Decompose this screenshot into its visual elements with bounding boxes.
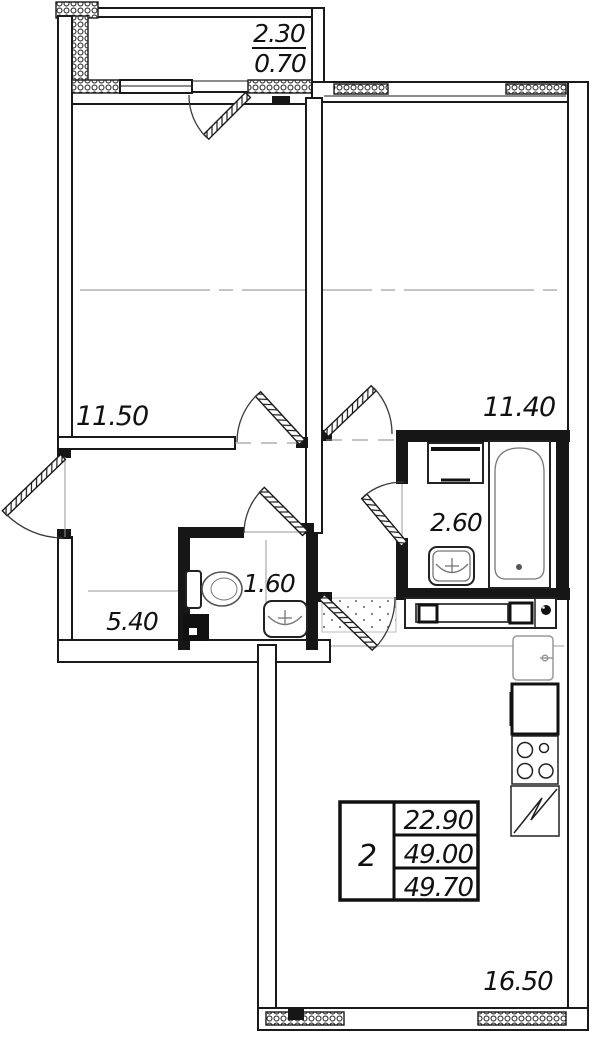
wc-right-wall — [306, 533, 318, 650]
floor-plan: 2 22.90 49.00 49.70 2.30 0.70 11.50 11.4… — [0, 0, 600, 1040]
vent-shaft — [183, 614, 209, 641]
living-area-value: 22.90 — [404, 806, 474, 836]
balcony-left-wall — [72, 16, 88, 82]
bathroom-right-wall — [556, 430, 568, 588]
wall-block — [272, 96, 290, 105]
summary-table: 2 22.90 49.00 49.70 — [340, 802, 478, 903]
balcony-top-wall — [94, 8, 312, 17]
hall-bottom-wall — [58, 640, 330, 662]
window — [266, 1012, 344, 1025]
kitchen-counter — [405, 598, 556, 628]
bathroom-left-wall-upper — [396, 430, 408, 484]
fridge-icon — [511, 786, 559, 836]
balcony-window-2 — [248, 80, 312, 93]
drain — [516, 564, 522, 570]
window-sill — [72, 80, 120, 93]
right-wall — [568, 82, 588, 1030]
toilet-icon — [186, 571, 242, 608]
balcony-area-top: 2.30 — [253, 19, 305, 48]
oven-icon — [512, 684, 559, 734]
stove-icon — [512, 736, 558, 784]
total-area-value: 49.70 — [404, 873, 474, 903]
kitchen-left-wall — [258, 645, 276, 1010]
floor-plan-svg: 2 22.90 49.00 49.70 2.30 0.70 11.50 11.4… — [0, 0, 600, 1040]
area-value: 49.00 — [404, 840, 474, 870]
sink-icon — [429, 547, 474, 585]
central-partition — [306, 98, 322, 533]
room-label-bedroom-left: 11.50 — [76, 401, 148, 432]
bedroom-hall-wall — [58, 437, 235, 449]
window — [478, 1012, 566, 1025]
bathtub-icon — [489, 441, 550, 588]
sink-icon — [264, 601, 307, 637]
left-wall-upper — [58, 16, 72, 449]
pipe-riser — [541, 605, 551, 615]
kitchen-sink-icon — [513, 636, 553, 680]
window — [506, 84, 566, 94]
left-wall-lower — [58, 537, 72, 647]
balcony-area-label: 2.30 0.70 — [252, 19, 306, 78]
window — [334, 84, 388, 94]
room-label-bedroom-right: 11.40 — [483, 392, 555, 423]
wall-pier — [288, 1008, 304, 1020]
room-label-bathroom: 2.60 — [430, 508, 482, 537]
rooms-count-value: 2 — [358, 839, 376, 874]
room-label-kitchen-living: 16.50 — [483, 967, 553, 997]
balcony-right-wall — [312, 8, 324, 92]
room-label-wc: 1.60 — [243, 569, 295, 598]
washing-machine-icon — [428, 443, 483, 483]
room-label-hallway: 5.40 — [106, 607, 158, 636]
balcony-area-bottom: 0.70 — [254, 49, 306, 78]
